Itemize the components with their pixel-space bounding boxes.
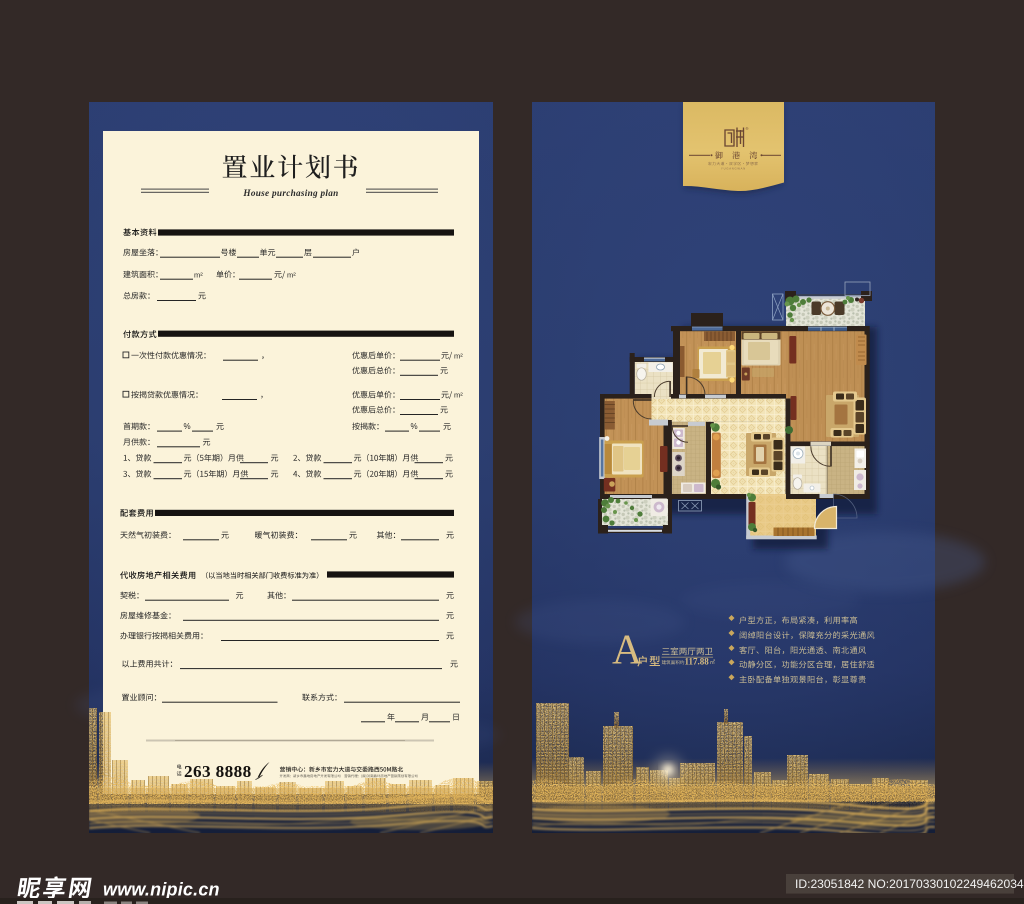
svg-text:m²: m² [194,270,203,279]
svg-text:YUGANGWAN: YUGANGWAN [721,166,746,170]
svg-text:m²: m² [454,351,463,360]
svg-text:263 8888: 263 8888 [184,762,252,781]
svg-text:%: % [184,422,191,431]
svg-text:117.88: 117.88 [685,656,710,666]
svg-text:m²: m² [287,270,296,279]
svg-text:m²: m² [454,391,463,400]
svg-text:A: A [612,628,643,674]
svg-text:House purchasing plan: House purchasing plan [242,188,338,198]
svg-text:®: ® [746,126,749,131]
svg-text:www.nipic.cn: www.nipic.cn [103,880,220,900]
svg-text:ID:23051842 NO:201703301022494: ID:23051842 NO:20170330102249462034 [795,877,1024,891]
svg-text:%: % [411,422,418,431]
